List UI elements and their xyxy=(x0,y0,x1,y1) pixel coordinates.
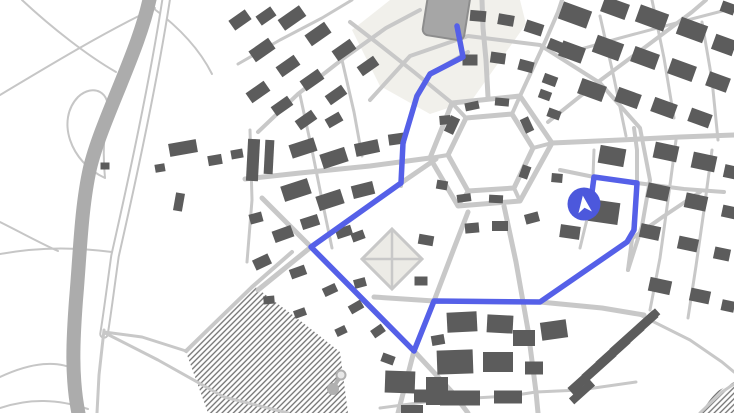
building xyxy=(525,362,543,375)
current-location-marker[interactable] xyxy=(568,188,601,221)
map-canvas[interactable] xyxy=(0,0,734,413)
building xyxy=(263,296,275,305)
building xyxy=(446,311,477,333)
building xyxy=(494,391,522,404)
building xyxy=(551,173,563,183)
monument-head xyxy=(337,371,346,380)
building xyxy=(246,139,260,182)
building xyxy=(483,352,513,372)
building xyxy=(426,377,448,405)
building xyxy=(540,319,568,340)
building xyxy=(436,180,448,191)
building xyxy=(495,97,510,106)
building xyxy=(101,163,110,170)
building xyxy=(385,370,416,393)
building xyxy=(439,115,451,125)
building xyxy=(470,10,487,22)
building xyxy=(559,224,581,240)
building xyxy=(513,330,535,346)
map-view[interactable] xyxy=(0,0,734,413)
building xyxy=(401,405,423,413)
building xyxy=(465,222,480,233)
building xyxy=(490,52,506,65)
building xyxy=(489,195,503,204)
building xyxy=(154,163,165,173)
building xyxy=(264,140,275,174)
building xyxy=(437,349,474,374)
building xyxy=(415,277,428,286)
monument-base xyxy=(327,383,339,395)
landmark-building[interactable] xyxy=(422,0,472,41)
building xyxy=(487,314,514,333)
building xyxy=(492,221,508,231)
